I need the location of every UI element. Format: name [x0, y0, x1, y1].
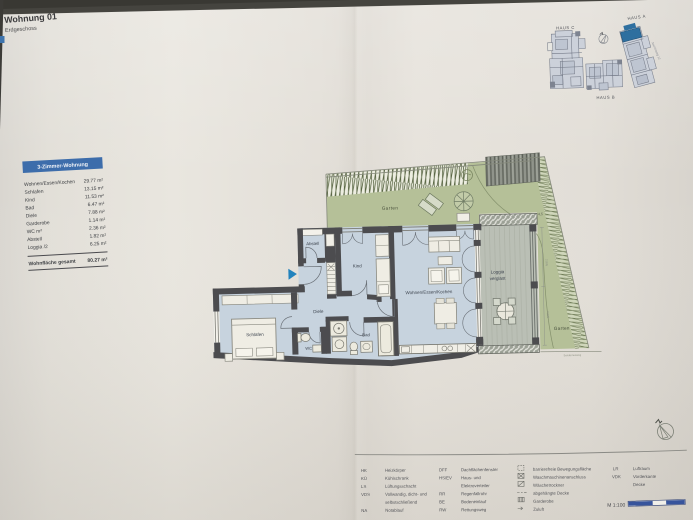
svg-text:Luftraum: Luftraum — [633, 466, 650, 471]
svg-text:Vorderkante: Vorderkante — [633, 474, 657, 479]
svg-text:Elektroverteiler: Elektroverteiler — [461, 483, 490, 488]
svg-text:Waschmaschinenanschluss: Waschmaschinenanschluss — [533, 474, 586, 479]
svg-text:LR: LR — [613, 466, 619, 471]
svg-text:BE: BE — [439, 499, 445, 504]
svg-text:Dachflächenfenster: Dachflächenfenster — [461, 467, 499, 472]
svg-text:Loggia: Loggia — [491, 269, 505, 274]
svg-text:6.47 m²: 6.47 m² — [88, 201, 105, 208]
svg-text:7.88 m²: 7.88 m² — [88, 209, 105, 216]
svg-text:KÜ: KÜ — [361, 476, 367, 481]
svg-text:Haus- und: Haus- und — [461, 475, 481, 480]
svg-text:Diele: Diele — [26, 213, 38, 220]
svg-text:verglast: verglast — [490, 276, 507, 281]
svg-text:Wäschetrockner: Wäschetrockner — [533, 483, 565, 488]
svg-text:HAUS C: HAUS C — [556, 25, 575, 31]
svg-text:WC m²: WC m² — [27, 228, 43, 235]
svg-text:4,5: 4,5 — [538, 212, 543, 216]
svg-text:VDK: VDK — [612, 474, 621, 479]
svg-text:selbstschließend: selbstschließend — [385, 500, 418, 505]
svg-text:2,805: 2,805 — [546, 311, 550, 319]
svg-text:RW: RW — [439, 507, 447, 512]
svg-text:29.77 m²: 29.77 m² — [84, 178, 104, 185]
svg-text:Heizkörper: Heizkörper — [385, 468, 406, 473]
svg-text:2.36 m²: 2.36 m² — [89, 225, 106, 232]
svg-text:Garderobe: Garderobe — [533, 499, 554, 504]
svg-text:VDS: VDS — [361, 492, 370, 497]
svg-text:Abstell: Abstell — [27, 236, 42, 243]
svg-text:HK: HK — [361, 468, 367, 473]
svg-text:2,805: 2,805 — [545, 259, 549, 267]
svg-text:Garten: Garten — [382, 205, 399, 210]
svg-text:Bodeneinlauf: Bodeneinlauf — [461, 499, 487, 504]
svg-text:Rettungsweg: Rettungsweg — [461, 507, 487, 512]
svg-text:barrierefreie Bewegungsfläche: barrierefreie Bewegungsfläche — [533, 466, 592, 471]
svg-text:Diele: Diele — [313, 309, 324, 314]
svg-text:Decke: Decke — [633, 482, 646, 487]
svg-text:WC: WC — [305, 346, 312, 351]
svg-text:RR: RR — [439, 491, 445, 496]
svg-text:M 1:100: M 1:100 — [607, 503, 625, 509]
svg-text:abgehängte Decke: abgehängte Decke — [533, 491, 570, 496]
svg-text:1.82 m²: 1.82 m² — [89, 233, 106, 240]
svg-text:Kind: Kind — [353, 263, 363, 268]
svg-text:DFF: DFF — [439, 467, 448, 472]
svg-text:Zuluft: Zuluft — [533, 507, 545, 512]
svg-text:6.25 m²: 6.25 m² — [90, 241, 107, 248]
svg-text:Notablauf: Notablauf — [385, 508, 404, 513]
svg-text:80.27 m²: 80.27 m² — [87, 257, 108, 264]
svg-text:Vollwandig, dicht- und: Vollwandig, dicht- und — [385, 492, 427, 497]
svg-text:LS: LS — [361, 484, 366, 489]
svg-text:NA: NA — [361, 508, 367, 513]
svg-text:Abstell: Abstell — [306, 241, 319, 246]
svg-text:Schlafen: Schlafen — [246, 332, 264, 337]
svg-text:Schlafen: Schlafen — [24, 189, 44, 196]
svg-text:Kind: Kind — [25, 197, 35, 204]
svg-text:11.53 m²: 11.53 m² — [85, 193, 105, 200]
svg-text:HAUS B: HAUS B — [596, 95, 615, 101]
svg-text:Lüftungsschacht: Lüftungsschacht — [385, 484, 417, 489]
svg-text:Kühlschrank: Kühlschrank — [385, 476, 410, 481]
svg-text:1.14 m²: 1.14 m² — [88, 217, 105, 224]
svg-text:HS/EV: HS/EV — [439, 475, 452, 480]
svg-text:Bad: Bad — [25, 205, 34, 211]
svg-text:13.15 m²: 13.15 m² — [84, 185, 104, 192]
svg-text:Bad: Bad — [362, 332, 370, 337]
svg-text:Loggia /2: Loggia /2 — [27, 244, 48, 251]
svg-text:Regenfallrohr: Regenfallrohr — [461, 491, 487, 496]
svg-text:Garten: Garten — [554, 326, 570, 331]
svg-text:Sondernutzung: Sondernutzung — [564, 353, 582, 357]
